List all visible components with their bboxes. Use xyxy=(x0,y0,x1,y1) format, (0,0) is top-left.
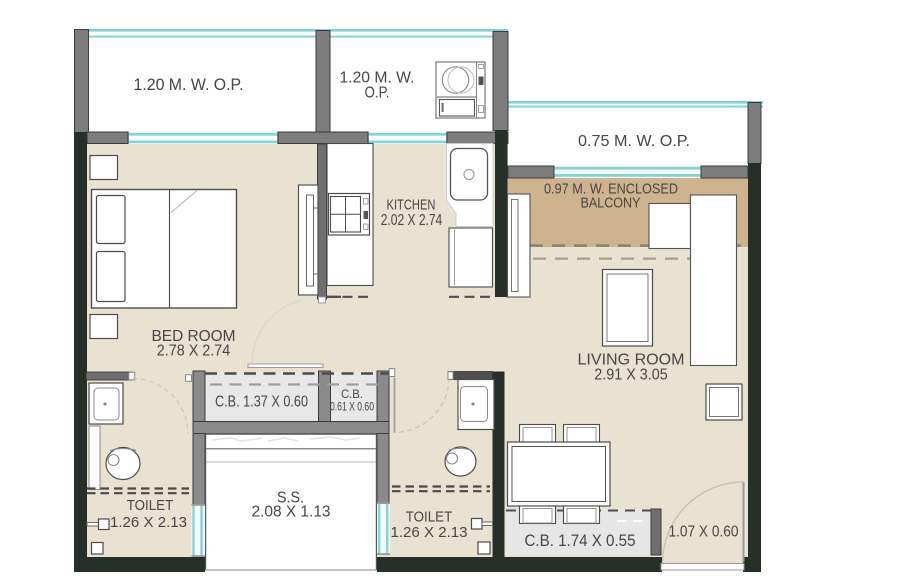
svg-text:C.B. 1.37 X 0.60: C.B. 1.37 X 0.60 xyxy=(215,394,308,411)
svg-text:0.75 M. W. O.P.: 0.75 M. W. O.P. xyxy=(578,133,690,150)
svg-text:0.61 X 0.60: 0.61 X 0.60 xyxy=(330,402,374,414)
svg-text:1.20 M. W. O.P.: 1.20 M. W. O.P. xyxy=(134,76,244,94)
svg-text:TOILET: TOILET xyxy=(127,497,174,514)
svg-text:1.07 X 0.60: 1.07 X 0.60 xyxy=(669,524,739,541)
svg-text:2.78 X 2.74: 2.78 X 2.74 xyxy=(157,343,231,360)
svg-text:BALCONY: BALCONY xyxy=(581,196,641,212)
svg-text:O.P.: O.P. xyxy=(365,85,390,102)
svg-text:2.02 X 2.74: 2.02 X 2.74 xyxy=(381,212,443,229)
svg-text:2.91 X 3.05: 2.91 X 3.05 xyxy=(594,367,668,384)
svg-text:KITCHEN: KITCHEN xyxy=(387,197,436,214)
svg-text:1.26 X 2.13: 1.26 X 2.13 xyxy=(391,524,468,541)
svg-text:C.B. 1.74 X 0.55: C.B. 1.74 X 0.55 xyxy=(525,532,636,550)
svg-text:2.08 X 1.13: 2.08 X 1.13 xyxy=(252,504,331,521)
svg-text:1.26 X 2.13: 1.26 X 2.13 xyxy=(110,514,187,531)
svg-text:C.B.: C.B. xyxy=(341,389,363,401)
svg-text:TOILET: TOILET xyxy=(406,509,453,526)
